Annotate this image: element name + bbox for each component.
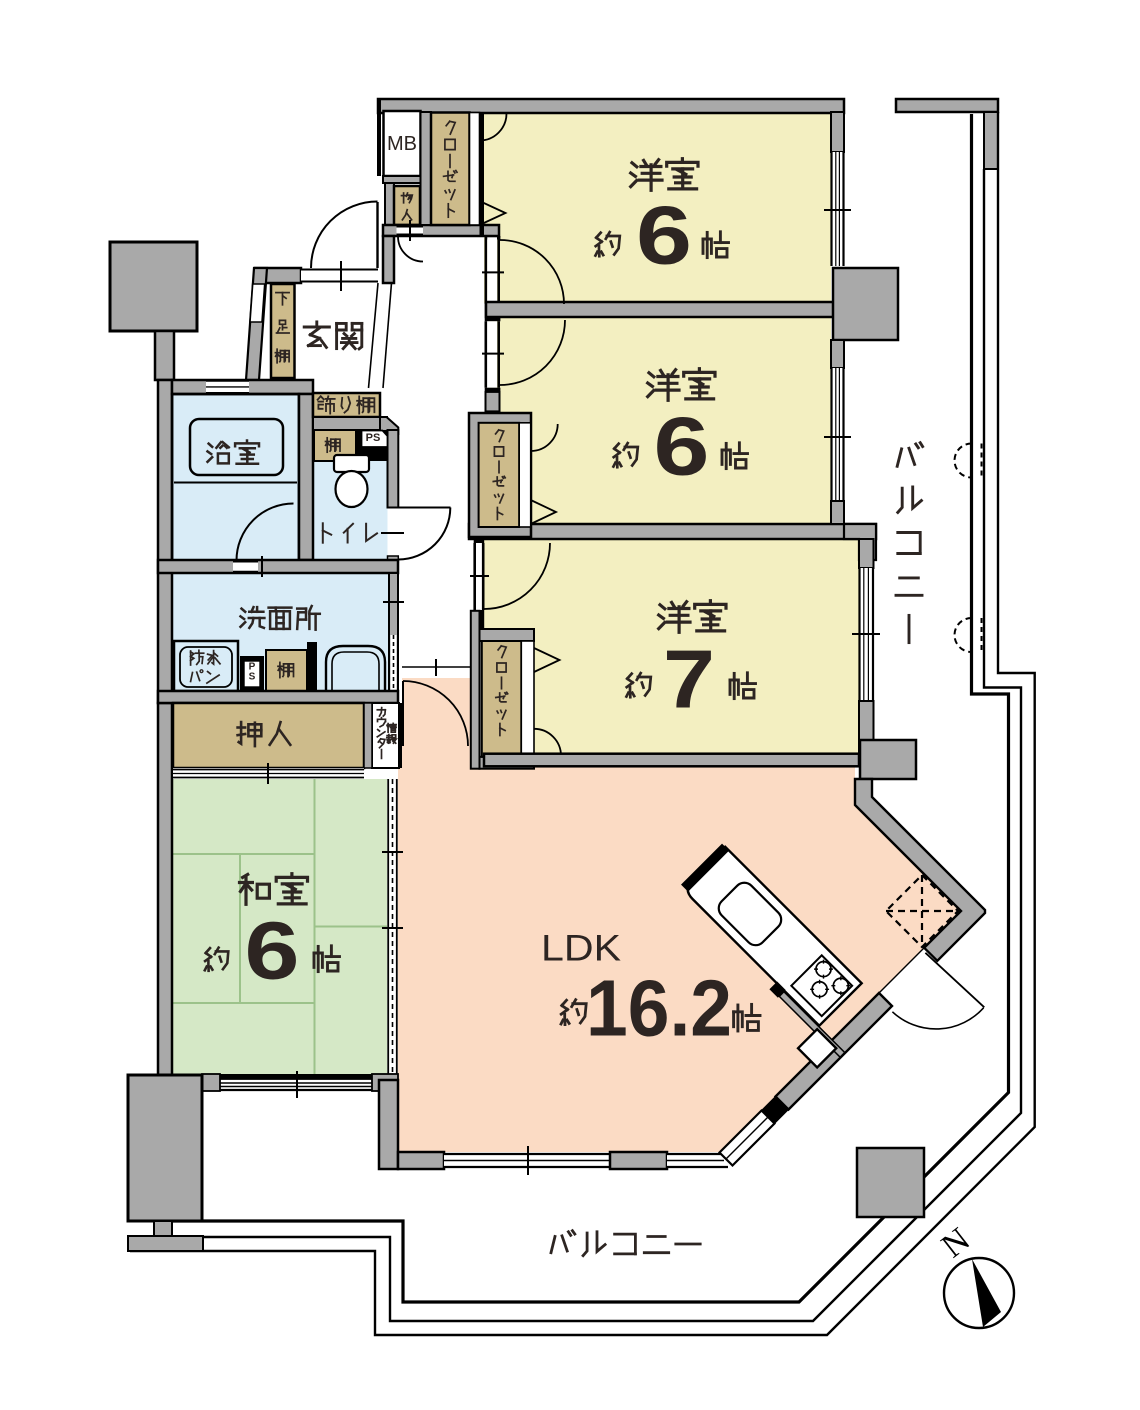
svg-text:PS: PS: [366, 432, 381, 444]
svg-text:S: S: [249, 672, 256, 683]
svg-text:16.2: 16.2: [586, 964, 732, 1053]
svg-text:6: 6: [636, 189, 692, 282]
svg-text:LDK: LDK: [541, 928, 621, 969]
svg-text:7: 7: [663, 633, 715, 726]
svg-text:MB: MB: [387, 133, 417, 155]
svg-text:6: 6: [245, 906, 300, 997]
svg-text:6: 6: [654, 400, 710, 493]
